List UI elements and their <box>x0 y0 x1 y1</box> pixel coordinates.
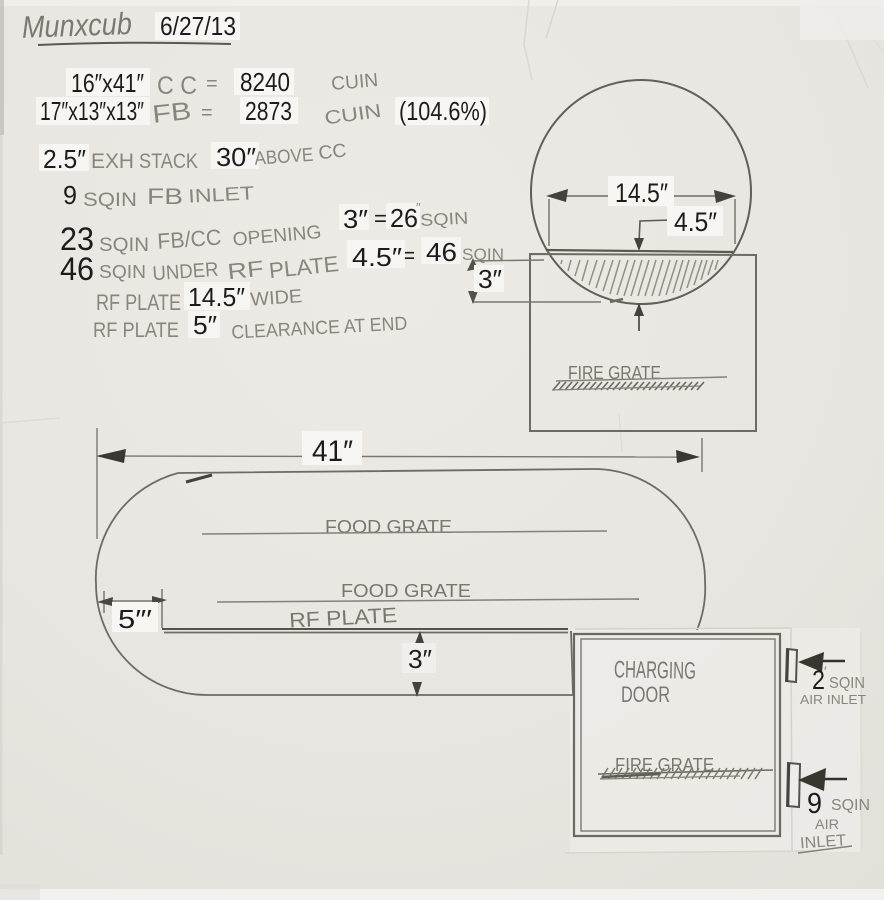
svg-text:C C: C C <box>157 72 197 100</box>
svg-text:4.5″: 4.5″ <box>674 207 717 237</box>
svg-text:CHARGING: CHARGING <box>614 656 696 684</box>
svg-text:SQIN: SQIN <box>99 262 146 282</box>
svg-text:SQIN: SQIN <box>829 675 865 692</box>
svg-text:SQIN: SQIN <box>831 797 870 814</box>
svg-text:41″: 41″ <box>312 435 353 468</box>
svg-text:3″: 3″ <box>408 644 432 674</box>
svg-text:46: 46 <box>60 251 94 287</box>
svg-text:′: ′ <box>824 663 827 679</box>
svg-text:SQIN: SQIN <box>99 235 149 256</box>
svg-text:FB/CC: FB/CC <box>157 225 223 254</box>
svg-text:14.5″: 14.5″ <box>615 178 668 208</box>
svg-text:INLET: INLET <box>188 183 255 207</box>
svg-text:2.5″: 2.5″ <box>43 144 86 174</box>
svg-text:3″: 3″ <box>478 264 502 294</box>
svg-text:26: 26 <box>390 203 418 233</box>
svg-text:2873: 2873 <box>245 96 292 126</box>
svg-text:(104.6%): (104.6%) <box>399 96 487 126</box>
svg-text:RF: RF <box>226 256 264 285</box>
svg-text:RF PLATE: RF PLATE <box>96 290 181 315</box>
svg-text:30″: 30″ <box>216 142 256 172</box>
svg-text:ABOVE: ABOVE <box>254 145 314 170</box>
svg-text:Munxcub: Munxcub <box>21 6 132 45</box>
svg-text:FB: FB <box>147 184 183 209</box>
svg-text:46: 46 <box>426 237 457 267</box>
svg-text:FOOD GRATE: FOOD GRATE <box>341 581 471 601</box>
svg-text:EXH: EXH <box>91 150 134 173</box>
svg-text:6/27/13: 6/27/13 <box>160 11 236 41</box>
svg-text:FOOD GRATE: FOOD GRATE <box>325 517 452 537</box>
svg-text:SQIN: SQIN <box>420 209 469 230</box>
svg-text:AIR INLET: AIR INLET <box>800 692 866 707</box>
svg-text:5″′: 5″′ <box>118 604 152 634</box>
svg-text:3″: 3″ <box>343 204 368 234</box>
svg-text:8240: 8240 <box>240 67 290 97</box>
svg-text:17″x13″x13″: 17″x13″x13″ <box>40 96 144 126</box>
svg-text:16″x41″: 16″x41″ <box>71 68 144 98</box>
svg-text:=: = <box>201 102 213 124</box>
svg-text:AIR: AIR <box>815 816 839 832</box>
svg-text:FB: FB <box>151 97 193 129</box>
svg-text:STACK: STACK <box>139 150 198 173</box>
svg-text:14.5″: 14.5″ <box>188 282 245 312</box>
svg-text:RF PLATE: RF PLATE <box>93 319 179 342</box>
svg-text:CC: CC <box>317 140 347 164</box>
svg-text:=: = <box>404 243 415 268</box>
svg-text:=: = <box>206 73 218 95</box>
svg-text:=: = <box>374 206 387 231</box>
svg-text:DOOR: DOOR <box>621 682 670 707</box>
svg-text:WIDE: WIDE <box>250 286 303 311</box>
svg-text:4.5″: 4.5″ <box>352 242 402 272</box>
svg-text:SQIN: SQIN <box>83 190 137 211</box>
svg-text:CUIN: CUIN <box>330 70 379 95</box>
svg-text:5″: 5″ <box>193 310 217 340</box>
svg-text:9: 9 <box>63 180 77 210</box>
svg-text:″: ″ <box>416 200 421 215</box>
